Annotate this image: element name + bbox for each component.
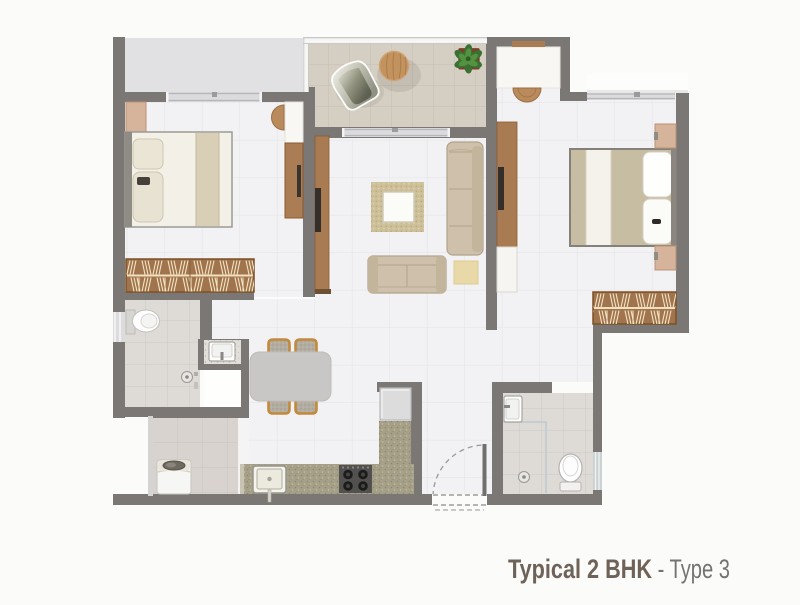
svg-text:Typical 2 BHK - Type 3: Typical 2 BHK - Type 3: [508, 554, 730, 584]
